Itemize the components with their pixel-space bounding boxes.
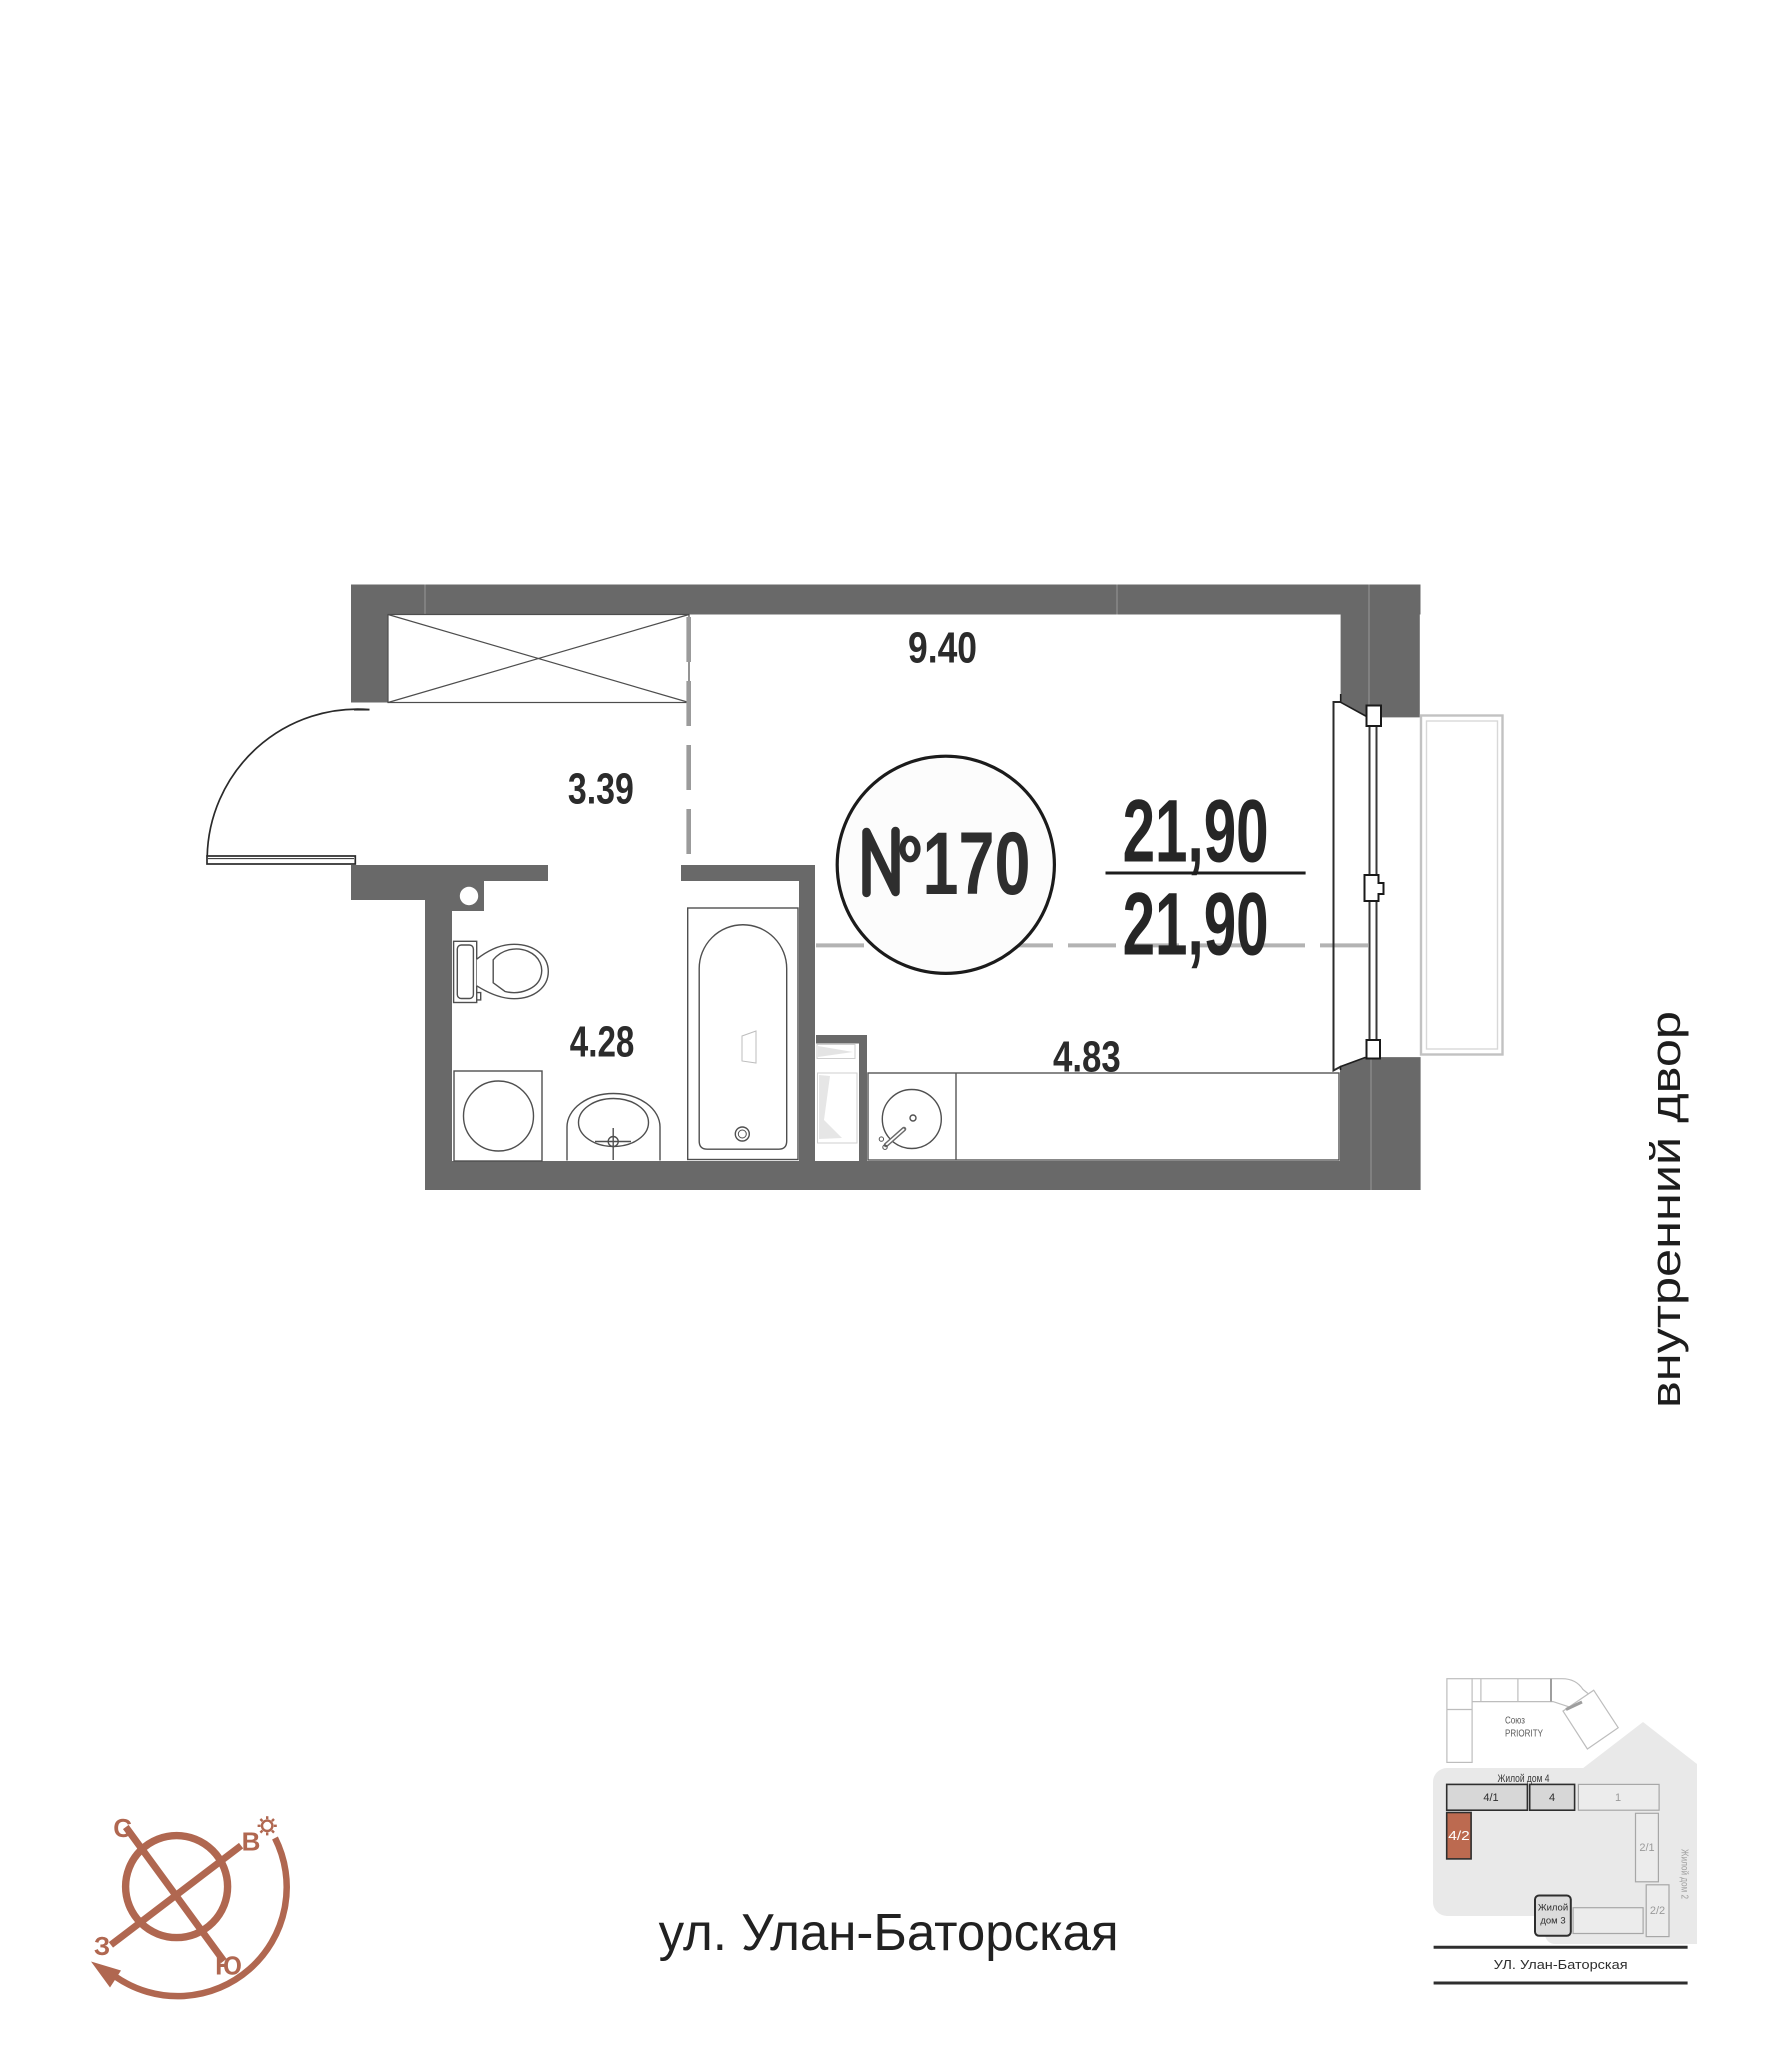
svg-text:4/1: 4/1: [1483, 1792, 1498, 1804]
svg-text:2/1: 2/1: [1639, 1842, 1654, 1854]
svg-text:4.28: 4.28: [570, 1018, 635, 1067]
svg-text:Жилой дом 4: Жилой дом 4: [1498, 1773, 1550, 1785]
svg-text:внутренний двор: внутренний двор: [1643, 1011, 1689, 1408]
svg-text:2/2: 2/2: [1650, 1905, 1665, 1917]
svg-text:170: 170: [923, 813, 1031, 913]
svg-text:Жилой: Жилой: [1538, 1903, 1568, 1914]
svg-text:9.40: 9.40: [908, 624, 977, 673]
svg-text:3.39: 3.39: [568, 764, 634, 813]
svg-text:Ю: Ю: [215, 1951, 242, 1981]
svg-text:С: С: [113, 1813, 132, 1843]
svg-text:PRIORITY: PRIORITY: [1505, 1729, 1543, 1740]
svg-text:4: 4: [1549, 1792, 1555, 1804]
svg-text:УЛ. Улан-Баторская: УЛ. Улан-Баторская: [1494, 1958, 1628, 1972]
svg-text:21,90: 21,90: [1123, 781, 1269, 881]
svg-text:ул. Улан-Баторская: ул. Улан-Баторская: [659, 1904, 1119, 1962]
svg-text:4/2: 4/2: [1448, 1828, 1470, 1843]
svg-text:З: З: [94, 1931, 110, 1961]
svg-text:дом 3: дом 3: [1540, 1916, 1565, 1927]
svg-text:В: В: [242, 1827, 261, 1857]
svg-text:1: 1: [1615, 1792, 1621, 1804]
svg-text:Союз: Союз: [1505, 1716, 1525, 1727]
svg-text:4.83: 4.83: [1053, 1032, 1121, 1081]
svg-text:21,90: 21,90: [1123, 874, 1269, 974]
svg-text:Жилой дом 2: Жилой дом 2: [1679, 1849, 1690, 1899]
